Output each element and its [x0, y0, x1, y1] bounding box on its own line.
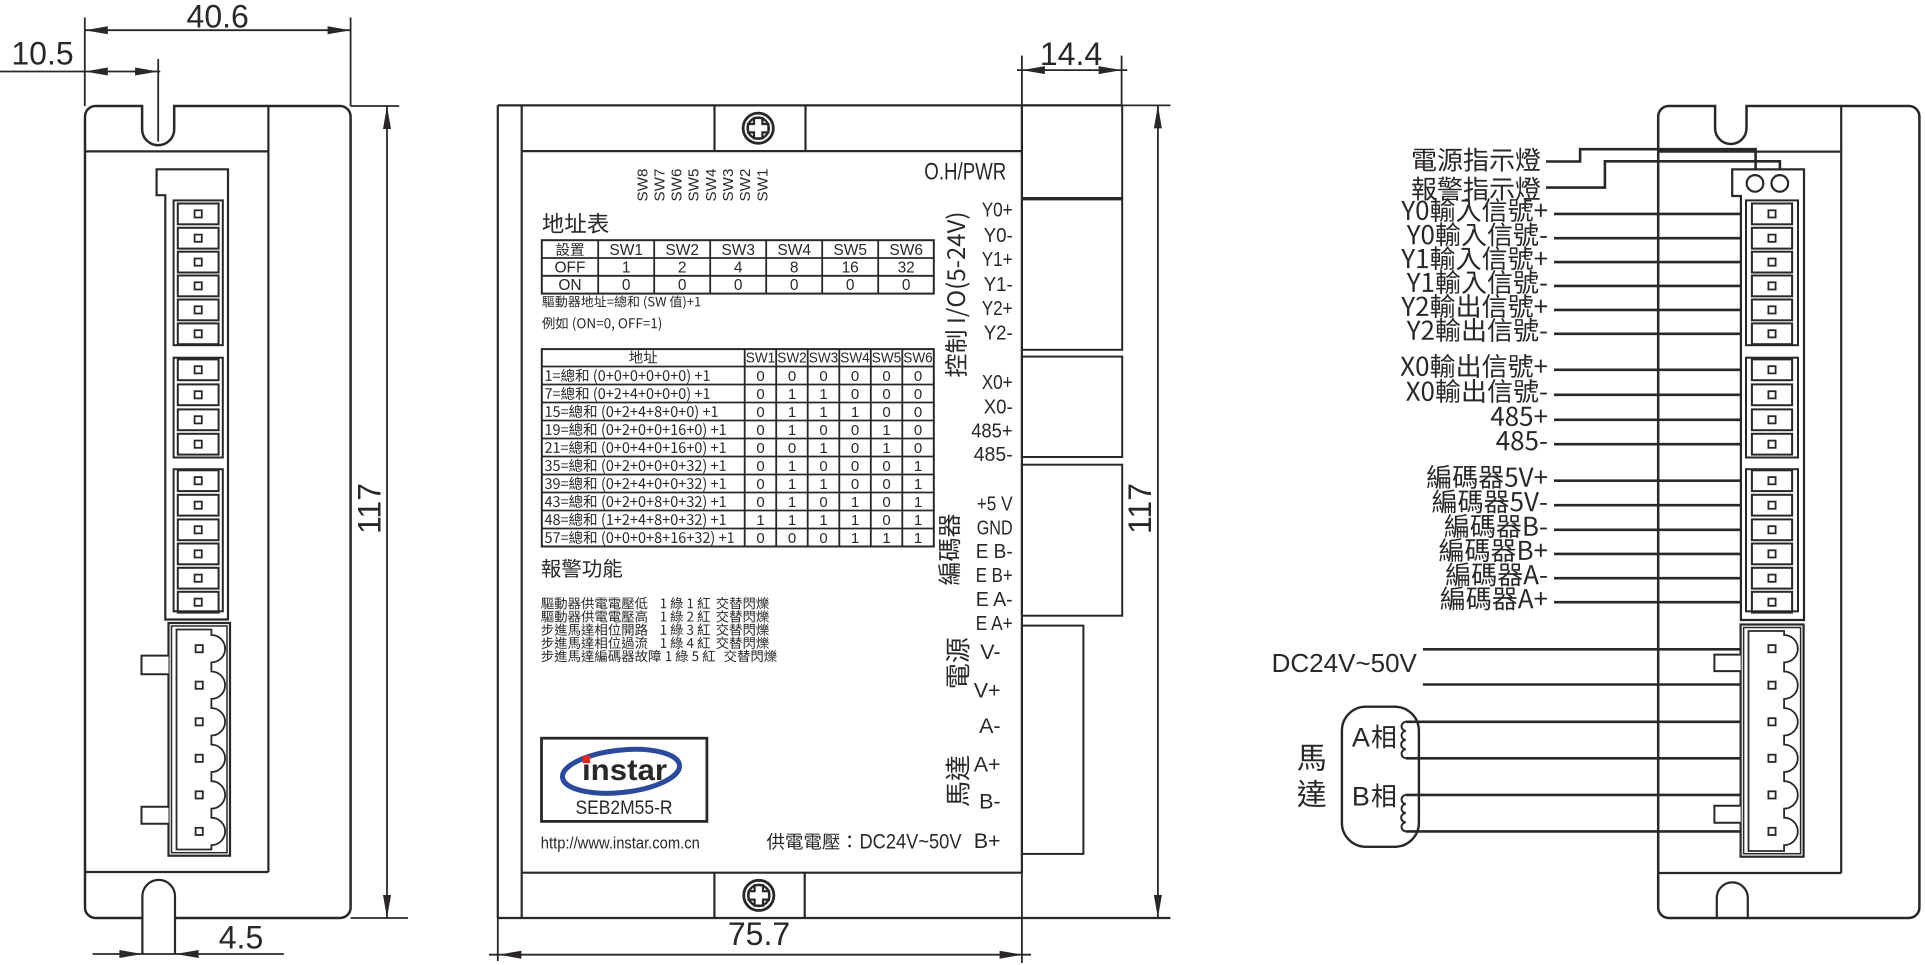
- svg-text:A+: A+: [974, 753, 1001, 777]
- svg-text:SW4: SW4: [840, 351, 870, 367]
- svg-text:0: 0: [756, 386, 764, 403]
- svg-text:0: 0: [756, 368, 764, 385]
- svg-text:0: 0: [790, 277, 799, 294]
- svg-text:0: 0: [756, 458, 764, 475]
- svg-text:Y2-: Y2-: [984, 323, 1013, 345]
- svg-text:485-: 485-: [974, 444, 1013, 466]
- svg-text:0: 0: [914, 386, 922, 403]
- svg-text:0: 0: [756, 440, 764, 457]
- svg-text:0: 0: [756, 422, 764, 439]
- svg-text:1: 1: [819, 440, 827, 457]
- svg-text:1: 1: [914, 512, 922, 529]
- svg-text:485+: 485+: [971, 421, 1013, 443]
- svg-text:B+: B+: [974, 829, 1001, 853]
- svg-text:1: 1: [851, 512, 859, 529]
- svg-text:SEB2M55-R: SEB2M55-R: [576, 797, 673, 819]
- svg-text:1: 1: [819, 386, 827, 403]
- svg-text:0: 0: [788, 368, 796, 385]
- svg-text:SW1: SW1: [609, 242, 643, 259]
- svg-text:0: 0: [902, 277, 911, 294]
- svg-text:SW3: SW3: [809, 351, 839, 367]
- svg-text:2: 2: [678, 259, 687, 276]
- svg-text:32: 32: [898, 259, 915, 276]
- svg-text:DC24V~50V: DC24V~50V: [860, 830, 962, 853]
- svg-text:1: 1: [851, 530, 859, 547]
- svg-text:0: 0: [622, 277, 631, 294]
- svg-text:E A+: E A+: [976, 613, 1013, 635]
- svg-text:0: 0: [756, 494, 764, 511]
- svg-text:SW6: SW6: [903, 351, 933, 367]
- svg-text:V+: V+: [974, 678, 1001, 702]
- svg-text:1: 1: [756, 512, 764, 529]
- svg-text:75.7: 75.7: [728, 916, 790, 952]
- svg-text:SW8: SW8: [634, 169, 651, 202]
- svg-text:OFF: OFF: [555, 259, 586, 276]
- svg-text:1: 1: [882, 440, 890, 457]
- svg-text:0: 0: [882, 476, 890, 493]
- svg-text:0: 0: [819, 422, 827, 439]
- svg-text:0: 0: [851, 476, 859, 493]
- svg-text:1: 1: [914, 530, 922, 547]
- svg-text:0: 0: [788, 530, 796, 547]
- svg-text:E B-: E B-: [976, 541, 1013, 563]
- svg-text:E B+: E B+: [976, 565, 1013, 587]
- svg-text:SW5: SW5: [872, 351, 902, 367]
- svg-text:1: 1: [914, 494, 922, 511]
- svg-text:1: 1: [788, 512, 796, 529]
- svg-text:SW6: SW6: [889, 242, 923, 259]
- svg-text:16: 16: [842, 259, 859, 276]
- svg-text:B-: B-: [979, 790, 1001, 814]
- svg-text:0: 0: [819, 530, 827, 547]
- svg-text:0: 0: [882, 512, 890, 529]
- svg-text:A-: A-: [979, 714, 1001, 738]
- svg-text:SW4: SW4: [777, 242, 811, 259]
- svg-text:0: 0: [756, 530, 764, 547]
- svg-text:GND: GND: [977, 518, 1013, 540]
- svg-text:1: 1: [851, 494, 859, 511]
- svg-text:0: 0: [756, 476, 764, 493]
- svg-text:Y1-: Y1-: [984, 274, 1013, 296]
- svg-text:Y0+: Y0+: [982, 200, 1013, 222]
- svg-text:SW2: SW2: [665, 242, 699, 259]
- svg-text:1: 1: [622, 259, 631, 276]
- svg-text:1: 1: [819, 476, 827, 493]
- svg-text:0: 0: [819, 458, 827, 475]
- svg-text:0: 0: [851, 458, 859, 475]
- svg-text:1: 1: [788, 458, 796, 475]
- svg-text:SW3: SW3: [721, 242, 755, 259]
- svg-text:0: 0: [851, 386, 859, 403]
- svg-text:Y1+: Y1+: [982, 249, 1013, 271]
- svg-text:1: 1: [882, 530, 890, 547]
- svg-text:0: 0: [914, 404, 922, 421]
- svg-text:1: 1: [882, 422, 890, 439]
- svg-text:ınstar: ınstar: [582, 754, 667, 787]
- svg-text:Y2+: Y2+: [982, 298, 1013, 320]
- svg-text:14.4: 14.4: [1040, 36, 1102, 72]
- svg-text:0: 0: [914, 422, 922, 439]
- svg-text:0: 0: [734, 277, 743, 294]
- svg-text:SW2: SW2: [777, 351, 807, 367]
- svg-text:0: 0: [788, 440, 796, 457]
- svg-text:SW4: SW4: [703, 169, 720, 202]
- svg-text:1: 1: [788, 422, 796, 439]
- svg-text:0: 0: [914, 368, 922, 385]
- svg-text:0: 0: [882, 458, 890, 475]
- svg-text:V-: V-: [980, 640, 1000, 664]
- svg-text:SW5: SW5: [686, 169, 703, 202]
- svg-text:0: 0: [819, 494, 827, 511]
- svg-text:117: 117: [1122, 483, 1158, 534]
- svg-text:8: 8: [790, 259, 799, 276]
- svg-text:1: 1: [914, 458, 922, 475]
- svg-text:B: B: [1352, 781, 1370, 811]
- svg-text:X0+: X0+: [982, 372, 1013, 394]
- svg-text:1: 1: [788, 476, 796, 493]
- svg-text:0: 0: [882, 386, 890, 403]
- svg-text:0: 0: [846, 277, 855, 294]
- svg-text:1: 1: [788, 494, 796, 511]
- svg-text:0: 0: [851, 368, 859, 385]
- svg-text:http://www.instar.com.cn: http://www.instar.com.cn: [541, 833, 700, 852]
- svg-text:1: 1: [788, 386, 796, 403]
- svg-text:0: 0: [882, 494, 890, 511]
- svg-text:1: 1: [819, 404, 827, 421]
- svg-text:SW7: SW7: [651, 169, 668, 202]
- svg-text:SW3: SW3: [720, 169, 737, 202]
- svg-text:0: 0: [678, 277, 687, 294]
- svg-text:10.5: 10.5: [11, 35, 73, 71]
- svg-text:SW5: SW5: [833, 242, 867, 259]
- svg-text:1: 1: [851, 404, 859, 421]
- svg-text:1: 1: [788, 404, 796, 421]
- svg-text:ON: ON: [558, 277, 581, 294]
- svg-text:0: 0: [851, 440, 859, 457]
- svg-text:E A-: E A-: [976, 589, 1013, 611]
- svg-text:0: 0: [756, 404, 764, 421]
- svg-text:+5 V: +5 V: [977, 493, 1014, 515]
- svg-text:0: 0: [914, 440, 922, 457]
- svg-text:SW2: SW2: [737, 169, 754, 202]
- svg-text:SW6: SW6: [669, 169, 686, 202]
- svg-text:Y0-: Y0-: [984, 225, 1013, 247]
- svg-text:O.H/PWR: O.H/PWR: [924, 158, 1006, 185]
- svg-text:0: 0: [851, 422, 859, 439]
- svg-text:117: 117: [352, 483, 388, 534]
- svg-text:X0-: X0-: [984, 396, 1013, 418]
- svg-text:1: 1: [819, 512, 827, 529]
- svg-text:1: 1: [914, 476, 922, 493]
- svg-text:SW1: SW1: [746, 351, 776, 367]
- svg-text:4: 4: [734, 259, 743, 276]
- svg-text:0: 0: [882, 368, 890, 385]
- svg-text:SW1: SW1: [754, 169, 771, 202]
- svg-text:4.5: 4.5: [219, 920, 263, 956]
- svg-text:0: 0: [819, 368, 827, 385]
- svg-text:A: A: [1352, 722, 1370, 752]
- svg-text:DC24V~50V: DC24V~50V: [1272, 648, 1418, 678]
- svg-text:0: 0: [882, 404, 890, 421]
